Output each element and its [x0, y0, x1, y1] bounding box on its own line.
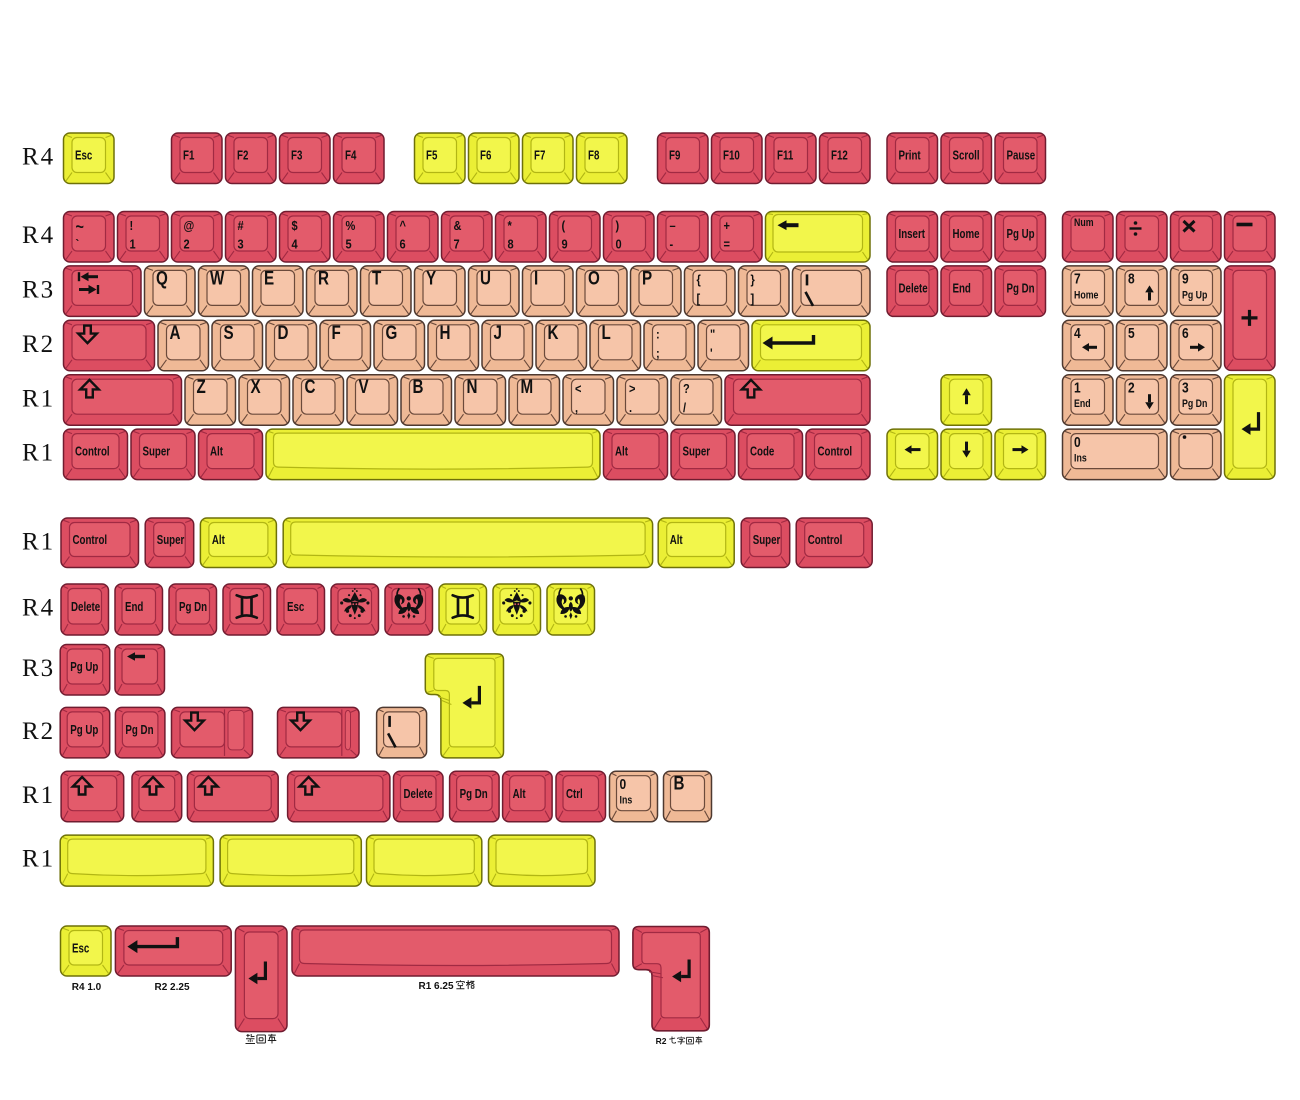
svg-text:<: < — [575, 381, 581, 396]
svg-text:Alt: Alt — [513, 788, 526, 801]
svg-text:Print: Print — [899, 150, 921, 163]
svg-text:Ins: Ins — [1074, 453, 1087, 465]
svg-text:L: L — [602, 321, 611, 343]
svg-text:0: 0 — [616, 237, 622, 252]
svg-text:F10: F10 — [723, 150, 740, 163]
svg-text:Pg Up: Pg Up — [1007, 228, 1035, 241]
svg-text:F6: F6 — [480, 150, 491, 163]
svg-text:}: } — [751, 272, 756, 287]
svg-text:2: 2 — [1128, 379, 1135, 396]
svg-text:R2: R2 — [22, 718, 55, 745]
svg-text:Esc: Esc — [72, 942, 89, 955]
svg-text:R2: R2 — [22, 331, 55, 358]
svg-text:7: 7 — [1074, 270, 1081, 287]
svg-text:-: - — [670, 237, 674, 252]
svg-text:": " — [710, 327, 715, 342]
svg-text:Delete: Delete — [899, 282, 928, 295]
svg-text:Home: Home — [953, 228, 980, 241]
svg-text:R4: R4 — [22, 144, 55, 171]
svg-text:Z: Z — [197, 376, 206, 398]
svg-text:R1: R1 — [22, 440, 55, 467]
svg-text:B: B — [413, 376, 424, 398]
svg-text:P: P — [642, 267, 652, 289]
svg-text:F: F — [332, 321, 341, 343]
svg-text:Insert: Insert — [899, 228, 926, 241]
svg-text:R1: R1 — [22, 529, 55, 556]
svg-text:3: 3 — [1182, 379, 1189, 396]
svg-text:,: , — [575, 400, 578, 415]
svg-text:End: End — [1074, 398, 1091, 410]
svg-text:F2: F2 — [237, 150, 248, 163]
svg-text:R1: R1 — [22, 385, 55, 412]
svg-text:0: 0 — [1074, 434, 1081, 451]
svg-text:(: ( — [562, 218, 566, 233]
svg-text:Alt: Alt — [210, 446, 223, 459]
svg-text:Y: Y — [426, 267, 437, 289]
svg-text:R3: R3 — [22, 655, 55, 682]
svg-text:R1 6.25: R1 6.25 — [418, 981, 453, 992]
svg-text:Pg Dn: Pg Dn — [1007, 282, 1035, 295]
svg-text:R3: R3 — [22, 277, 55, 304]
svg-text:5: 5 — [346, 237, 352, 252]
svg-text:;: ; — [656, 346, 660, 361]
svg-text:Ctrl: Ctrl — [566, 788, 583, 801]
svg-text:Q: Q — [156, 267, 168, 289]
svg-text:Super: Super — [683, 446, 711, 459]
svg-text:~: ~ — [76, 218, 84, 236]
svg-text:V: V — [359, 376, 370, 398]
svg-text:R1: R1 — [22, 846, 55, 873]
svg-text:–: – — [670, 218, 676, 233]
svg-text:F1: F1 — [183, 150, 194, 163]
svg-text:H: H — [440, 321, 451, 343]
svg-text:U: U — [480, 267, 491, 289]
svg-text:F12: F12 — [831, 150, 848, 163]
svg-text:Code: Code — [750, 446, 774, 459]
svg-text:F3: F3 — [291, 150, 302, 163]
svg-text:^: ^ — [400, 218, 406, 233]
svg-text:G: G — [386, 321, 398, 343]
svg-text:%: % — [346, 218, 356, 233]
svg-text:Control: Control — [808, 534, 843, 547]
svg-text:$: $ — [292, 218, 298, 233]
svg-text:6: 6 — [1182, 325, 1189, 342]
svg-text:3: 3 — [238, 237, 244, 252]
svg-text:Control: Control — [75, 446, 110, 459]
svg-text:7: 7 — [454, 237, 460, 252]
svg-text:R4: R4 — [22, 222, 55, 249]
svg-text:B: B — [674, 772, 685, 794]
svg-text:Home: Home — [1074, 290, 1099, 302]
svg-text:R2 2.25: R2 2.25 — [154, 982, 189, 993]
svg-text:Ins: Ins — [620, 795, 633, 807]
svg-text:O: O — [588, 267, 600, 289]
svg-text:Super: Super — [143, 446, 171, 459]
svg-text:{: { — [697, 272, 702, 287]
svg-text:=: = — [724, 237, 730, 252]
svg-text:.: . — [629, 400, 632, 415]
svg-text:W: W — [210, 267, 225, 289]
svg-text:Pg Up: Pg Up — [70, 724, 98, 737]
svg-text:`: ` — [76, 237, 80, 252]
svg-text:]: ] — [751, 291, 755, 306]
svg-text:4: 4 — [1074, 325, 1081, 342]
svg-text:Delete: Delete — [71, 601, 100, 614]
svg-text:F9: F9 — [669, 150, 680, 163]
svg-text:R: R — [318, 267, 329, 289]
svg-text:F4: F4 — [345, 150, 357, 163]
svg-text:Pg Dn: Pg Dn — [1182, 398, 1207, 410]
svg-text:S: S — [224, 321, 234, 343]
svg-text:Esc: Esc — [287, 601, 304, 614]
svg-text:R4 1.0: R4 1.0 — [72, 982, 102, 993]
svg-text:8: 8 — [1128, 270, 1135, 287]
svg-text:C: C — [305, 376, 316, 398]
svg-text:Delete: Delete — [404, 788, 433, 801]
svg-text:Super: Super — [753, 534, 781, 547]
svg-text:Alt: Alt — [670, 534, 683, 547]
svg-text:Num: Num — [1074, 217, 1094, 229]
svg-text:[: [ — [697, 291, 701, 306]
svg-text:X: X — [251, 376, 262, 398]
svg-text:>: > — [629, 381, 635, 396]
svg-text:Pause: Pause — [1007, 150, 1036, 163]
svg-text:A: A — [170, 321, 181, 343]
svg-text:5: 5 — [1128, 325, 1135, 342]
svg-text:!: ! — [130, 218, 134, 233]
svg-text:4: 4 — [292, 237, 298, 252]
svg-text:Scroll: Scroll — [953, 150, 980, 163]
svg-text:End: End — [953, 282, 972, 295]
svg-text:N: N — [467, 376, 478, 398]
svg-text:Pg Up: Pg Up — [1182, 290, 1207, 302]
svg-text:I: I — [534, 267, 538, 289]
svg-text:F5: F5 — [426, 150, 437, 163]
svg-text:2: 2 — [184, 237, 190, 252]
svg-text:J: J — [494, 321, 502, 343]
svg-text:F7: F7 — [534, 150, 545, 163]
svg-text:*: * — [508, 218, 513, 233]
svg-text:End: End — [125, 601, 144, 614]
svg-text:T: T — [372, 267, 382, 289]
svg-text:Pg Dn: Pg Dn — [460, 788, 488, 801]
svg-text:Control: Control — [73, 534, 108, 547]
svg-text:E: E — [264, 267, 274, 289]
svg-text:Alt: Alt — [212, 534, 225, 547]
svg-text:9: 9 — [1182, 270, 1189, 287]
svg-text:+: + — [724, 218, 730, 233]
svg-text:Alt: Alt — [615, 446, 628, 459]
svg-text:': ' — [710, 346, 713, 361]
svg-text:?: ? — [683, 381, 690, 396]
svg-text:K: K — [548, 321, 559, 343]
svg-text:Super: Super — [157, 534, 185, 547]
svg-text:&: & — [454, 218, 462, 233]
svg-text:M: M — [521, 376, 534, 398]
svg-text:): ) — [616, 218, 620, 233]
svg-text:D: D — [278, 321, 289, 343]
svg-text:F11: F11 — [777, 150, 793, 163]
svg-text:0: 0 — [620, 776, 627, 793]
svg-text:Esc: Esc — [75, 150, 92, 163]
svg-text::: : — [656, 327, 660, 342]
svg-text:Pg Dn: Pg Dn — [125, 724, 153, 737]
svg-text:9: 9 — [562, 237, 568, 252]
svg-text:8: 8 — [508, 237, 514, 252]
svg-text:1: 1 — [1074, 379, 1081, 396]
svg-text:Control: Control — [818, 446, 853, 459]
svg-text:#: # — [238, 218, 244, 233]
svg-text:Pg Dn: Pg Dn — [179, 601, 207, 614]
svg-text:6: 6 — [400, 237, 406, 252]
svg-text:Pg Up: Pg Up — [70, 661, 98, 674]
svg-text:1: 1 — [130, 237, 136, 252]
svg-text:R1: R1 — [22, 782, 55, 809]
svg-text:@: @ — [184, 218, 195, 233]
svg-text:R2: R2 — [656, 1036, 667, 1046]
svg-text:R4: R4 — [22, 595, 55, 622]
svg-text:F8: F8 — [588, 150, 599, 163]
